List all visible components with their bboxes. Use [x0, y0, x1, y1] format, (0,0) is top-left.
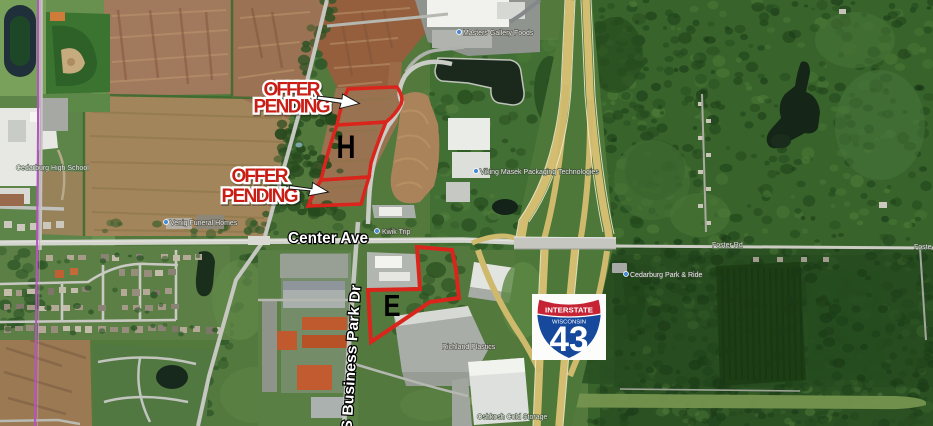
- svg-text:43: 43: [550, 320, 589, 359]
- svg-text:Oshkosh Cold Storage: Oshkosh Cold Storage: [477, 414, 548, 421]
- svg-text:Masters Gallery Foods: Masters Gallery Foods: [463, 30, 534, 37]
- svg-text:Center Ave: Center Ave: [288, 230, 368, 247]
- svg-text:Venig Funeral Homes: Venig Funeral Homes: [170, 220, 238, 227]
- svg-text:Cedarburg Park & Ride: Cedarburg Park & Ride: [630, 272, 702, 279]
- svg-text:Cedarburg High School: Cedarburg High School: [16, 165, 89, 172]
- svg-text:Kwik Trip: Kwik Trip: [382, 229, 411, 236]
- svg-text:Foster Rd: Foster Rd: [712, 242, 743, 249]
- svg-text:Viking Masek Packaging Technol: Viking Masek Packaging Technologies: [480, 169, 599, 176]
- svg-text:PENDING: PENDING: [222, 186, 299, 207]
- svg-text:Richland Plastics: Richland Plastics: [442, 344, 496, 351]
- svg-text:H: H: [337, 129, 356, 165]
- svg-text:E: E: [384, 288, 401, 323]
- svg-text:Foste: Foste: [914, 244, 932, 251]
- svg-text:INTERSTATE: INTERSTATE: [545, 306, 593, 315]
- svg-text:OFFER: OFFER: [232, 166, 289, 187]
